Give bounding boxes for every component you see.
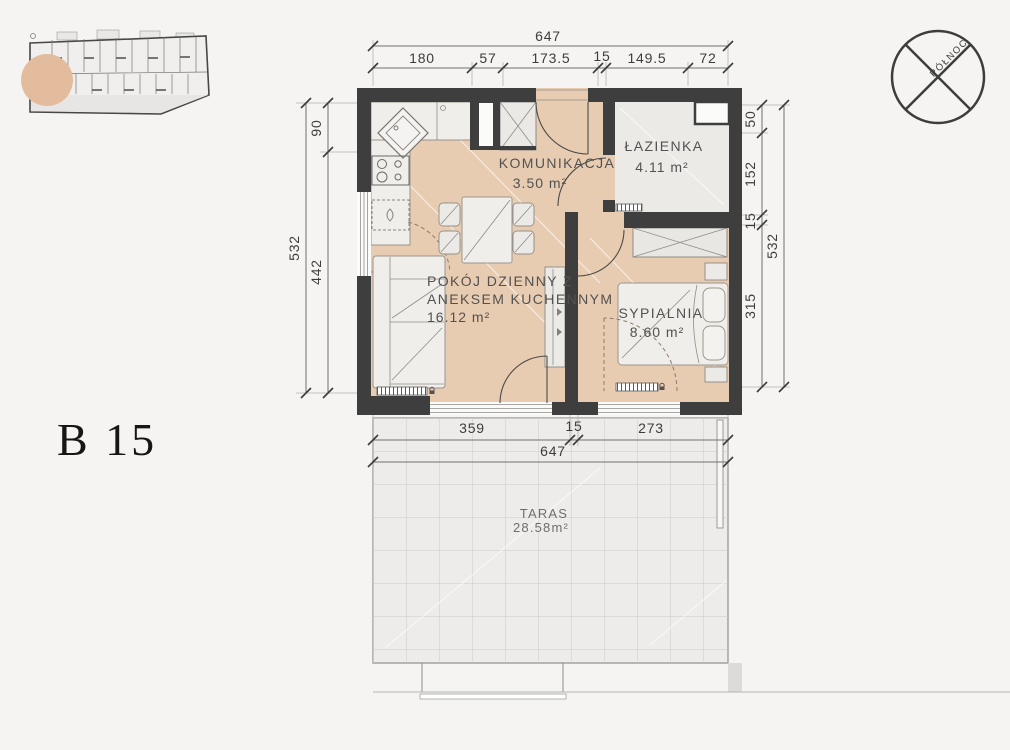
unit-label: B 15 <box>57 414 157 465</box>
living-area: 16.12 m² <box>427 309 490 325</box>
wardrobe <box>633 228 727 257</box>
bathroom-niche <box>695 102 729 124</box>
terrace-area <box>373 418 1010 699</box>
dim-bottom-seg-2: 273 <box>638 420 664 436</box>
compass-label: PÓŁNOC <box>928 37 971 80</box>
dim-top-seg-4: 149.5 <box>627 50 666 66</box>
nightstand <box>705 367 727 382</box>
living-room-window <box>430 402 552 415</box>
bedroom-area: 8.60 m² <box>630 324 684 340</box>
dim-right-total: 532 <box>764 233 780 259</box>
bedroom-window <box>598 402 680 415</box>
location-highlight-circle <box>21 54 73 106</box>
dim-top-total: 647 <box>535 28 561 44</box>
duct-shaft <box>478 102 494 148</box>
dim-top-seg-5: 72 <box>699 50 716 66</box>
living-name-line2: ANEKSEM KUCHENNYM <box>427 291 613 307</box>
dim-right-seg-0: 50 <box>742 110 758 127</box>
bathroom-area: 4.11 m² <box>635 159 688 175</box>
dim-top-seg-1: 57 <box>479 50 496 66</box>
dim-right-seg-2: 15 <box>742 212 758 229</box>
dim-left-seg-1: 442 <box>308 259 324 285</box>
dim-left-seg-0: 90 <box>308 119 324 136</box>
dim-right-seg-3: 315 <box>742 293 758 319</box>
dim-bottom-seg-0: 359 <box>459 420 485 436</box>
side-window <box>357 192 371 276</box>
dim-top-seg-0: 180 <box>409 50 435 66</box>
bedroom-name: SYPIALNIA <box>619 305 704 321</box>
terrace-area: 28.58m² <box>513 520 569 535</box>
bathroom-name: ŁAZIENKA <box>625 138 704 154</box>
dim-right-seg-1: 152 <box>742 161 758 187</box>
hall-furniture <box>478 102 536 150</box>
walkway-step <box>420 694 566 699</box>
hall-wardrobe <box>500 102 536 150</box>
terrace-divider-wall <box>717 420 723 528</box>
living-name-line1: POKÓJ DZIENNY Z <box>427 273 573 289</box>
dim-bottom-seg-1: 15 <box>565 418 582 434</box>
hall-name: KOMUNIKACJA <box>499 155 616 171</box>
mini-site-plan <box>21 30 209 114</box>
nightstand <box>705 263 727 280</box>
terrace-name: TARAS <box>520 506 568 521</box>
dim-top-seg-3: 15 <box>593 48 610 64</box>
floor-plan-page: PÓŁNOC B 15 <box>0 0 1010 750</box>
dim-left-total: 532 <box>286 235 302 261</box>
north-compass: PÓŁNOC <box>892 31 984 123</box>
dim-top-seg-2: 173.5 <box>531 50 570 66</box>
dim-bottom-total: 647 <box>540 443 566 459</box>
hall-area: 3.50 m² <box>513 175 567 191</box>
